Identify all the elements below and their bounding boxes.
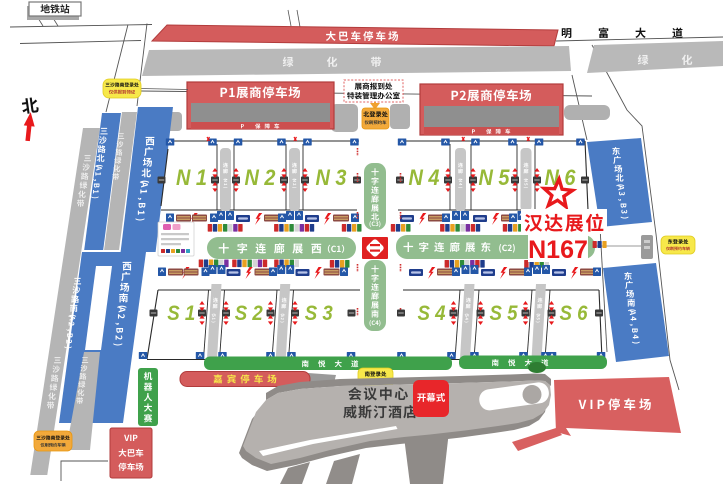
svg-text:N 1: N 1 <box>176 165 207 190</box>
svg-text:S 1: S 1 <box>167 302 195 325</box>
svg-text:N 3: N 3 <box>316 165 347 190</box>
svg-text:S 4: S 4 <box>418 302 446 325</box>
svg-text:S 3: S 3 <box>305 302 333 325</box>
svg-text:N 4: N 4 <box>409 165 440 190</box>
svg-text:S 6: S 6 <box>560 302 588 325</box>
svg-text:N 5: N 5 <box>479 165 511 190</box>
svg-text:S 5: S 5 <box>490 302 518 325</box>
svg-text:N167: N167 <box>528 236 588 264</box>
svg-text:N 2: N 2 <box>245 165 277 190</box>
svg-text:S 2: S 2 <box>235 302 263 325</box>
